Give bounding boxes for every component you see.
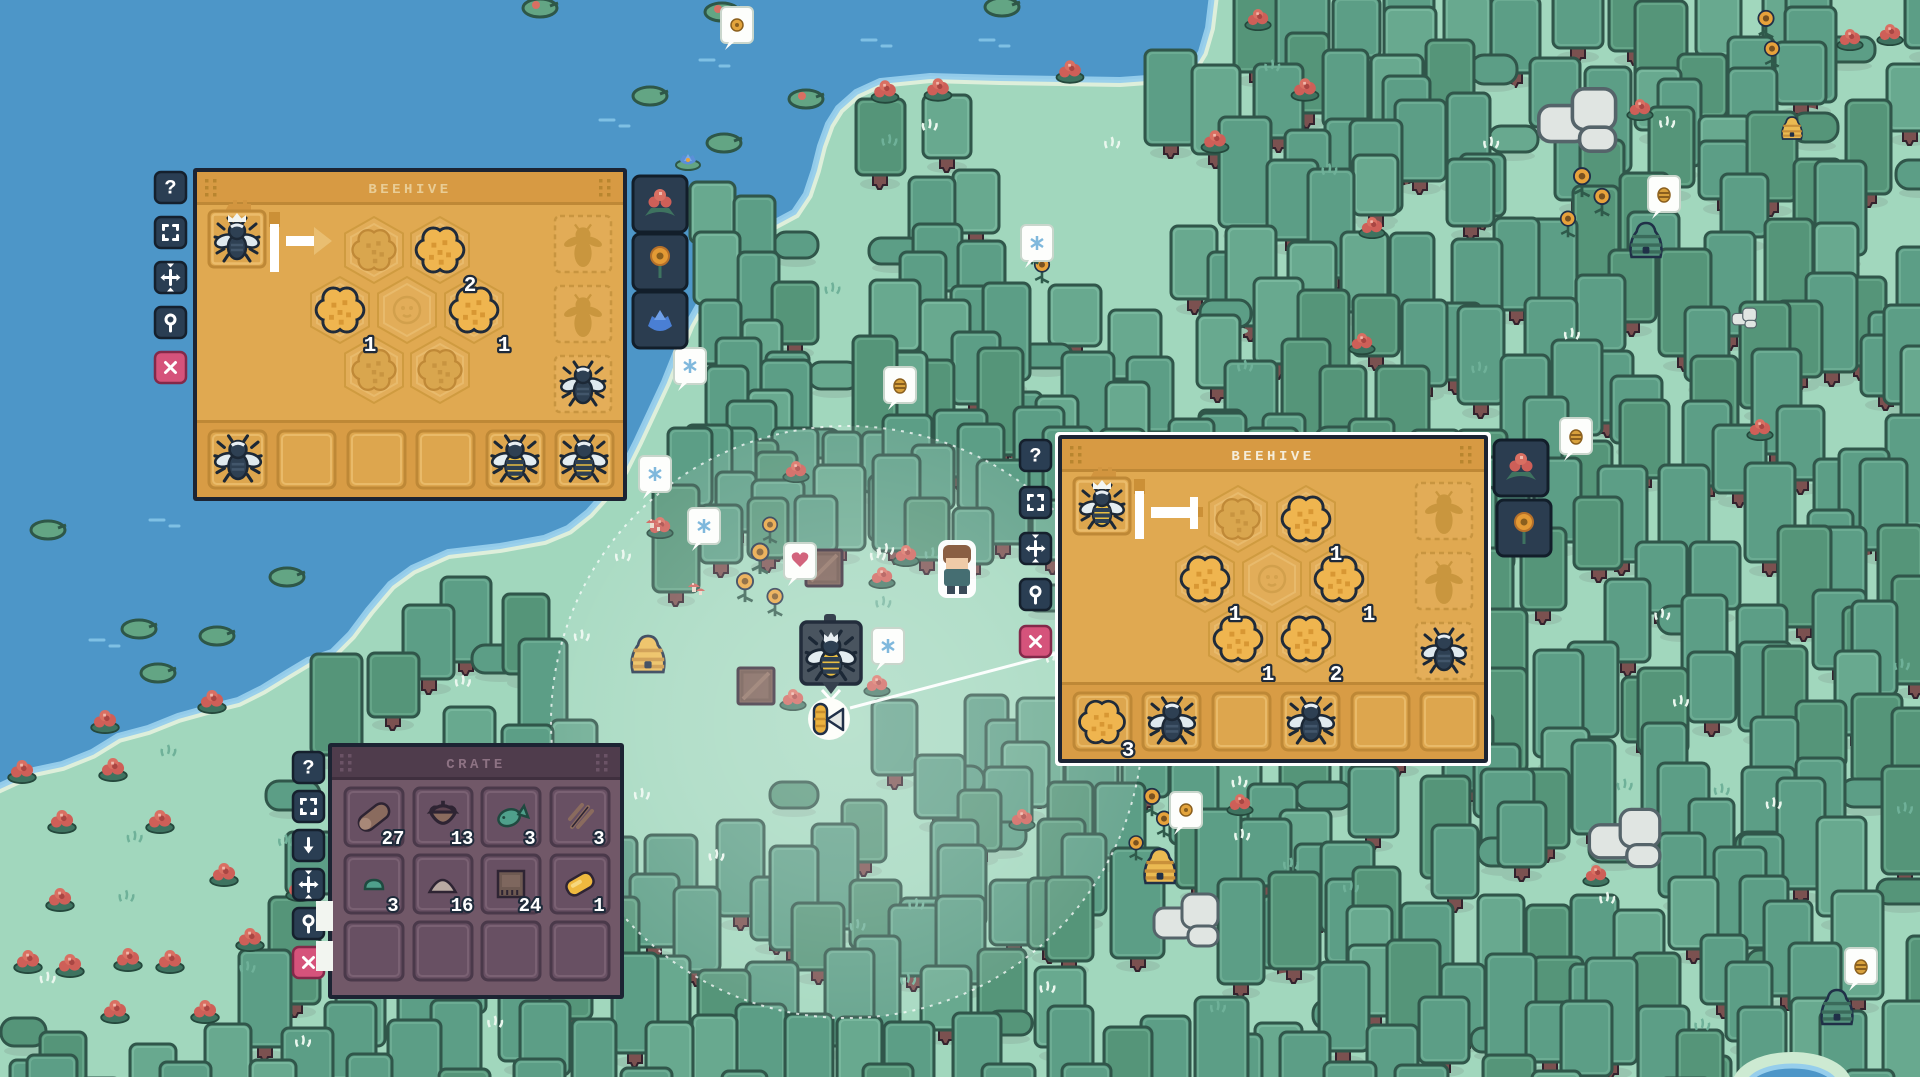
svg-text:1: 1 <box>1363 604 1376 627</box>
svg-text:CRATE: CRATE <box>446 757 506 773</box>
svg-text:BEEHIVE: BEEHIVE <box>368 182 451 198</box>
svg-text:3: 3 <box>387 895 398 917</box>
svg-text:3: 3 <box>1122 740 1135 763</box>
svg-text:1: 1 <box>364 335 377 358</box>
svg-text:?: ? <box>1029 446 1041 469</box>
svg-text:?: ? <box>302 758 314 781</box>
svg-text:2: 2 <box>464 275 477 298</box>
svg-text:13: 13 <box>451 828 474 850</box>
svg-text:16: 16 <box>451 895 474 917</box>
svg-text:27: 27 <box>382 828 405 850</box>
svg-text:1: 1 <box>498 335 511 358</box>
svg-text:1: 1 <box>1229 604 1242 627</box>
svg-text:?: ? <box>164 178 176 201</box>
svg-text:1: 1 <box>593 895 604 917</box>
svg-text:3: 3 <box>524 828 535 850</box>
svg-text:24: 24 <box>519 895 542 917</box>
svg-text:3: 3 <box>593 828 604 850</box>
svg-text:1: 1 <box>1330 544 1343 567</box>
svg-text:BEEHIVE: BEEHIVE <box>1231 449 1314 465</box>
